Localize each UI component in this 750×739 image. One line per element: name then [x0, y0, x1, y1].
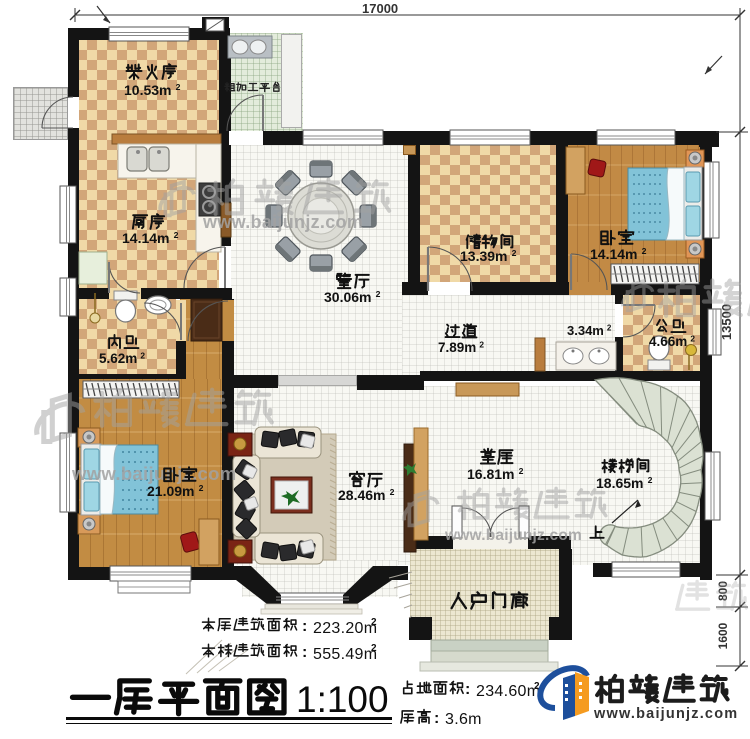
svg-text:www.baijunjz.com: www.baijunjz.com — [71, 463, 236, 484]
svg-text:2: 2 — [519, 466, 524, 476]
svg-text:1:100: 1:100 — [296, 679, 389, 720]
svg-text:2: 2 — [648, 475, 653, 485]
svg-text:18.65m: 18.65m — [596, 475, 643, 491]
svg-text:4.66m: 4.66m — [649, 334, 687, 349]
svg-text:7.89m: 7.89m — [438, 340, 476, 355]
svg-text::: : — [465, 681, 470, 698]
svg-text:14.14m: 14.14m — [122, 230, 169, 246]
svg-text:2: 2 — [174, 230, 179, 240]
svg-text:2: 2 — [479, 339, 484, 349]
svg-text:2: 2 — [607, 323, 612, 332]
svg-text:2: 2 — [140, 350, 145, 360]
svg-text:234.60m: 234.60m — [476, 683, 540, 700]
svg-text:1600: 1600 — [716, 622, 730, 649]
svg-text:28.46m: 28.46m — [338, 487, 385, 503]
svg-text:2: 2 — [371, 617, 377, 628]
svg-text:223.20m: 223.20m — [313, 620, 377, 637]
svg-text::: : — [434, 710, 439, 727]
svg-text:3.34m: 3.34m — [567, 323, 604, 338]
svg-text:2: 2 — [176, 82, 181, 92]
svg-text::: : — [302, 644, 307, 661]
svg-text:2: 2 — [376, 289, 381, 299]
svg-text:2: 2 — [199, 483, 204, 493]
svg-text::: : — [302, 618, 307, 635]
svg-text:2: 2 — [642, 246, 647, 256]
svg-text:10.53m: 10.53m — [124, 82, 171, 98]
svg-text:3.6m: 3.6m — [445, 711, 482, 728]
svg-text:555.49m: 555.49m — [313, 646, 377, 663]
svg-text:www.baijunjz.com: www.baijunjz.com — [593, 706, 738, 722]
svg-text:2: 2 — [390, 487, 395, 497]
svg-text:www.baijunjz.com: www.baijunjz.com — [444, 527, 582, 544]
svg-text:16.81m: 16.81m — [467, 466, 514, 482]
svg-text:14.14m: 14.14m — [590, 246, 637, 262]
svg-text:2: 2 — [512, 248, 517, 258]
svg-text:17000: 17000 — [362, 1, 398, 16]
svg-text:30.06m: 30.06m — [324, 289, 371, 305]
svg-text:5.62m: 5.62m — [99, 351, 137, 366]
svg-text:21.09m: 21.09m — [147, 483, 194, 499]
svg-text:13.39m: 13.39m — [460, 248, 507, 264]
svg-text:2: 2 — [690, 333, 695, 343]
svg-text:www.baijunjz.com: www.baijunjz.com — [202, 212, 363, 232]
svg-text:2: 2 — [371, 643, 377, 654]
